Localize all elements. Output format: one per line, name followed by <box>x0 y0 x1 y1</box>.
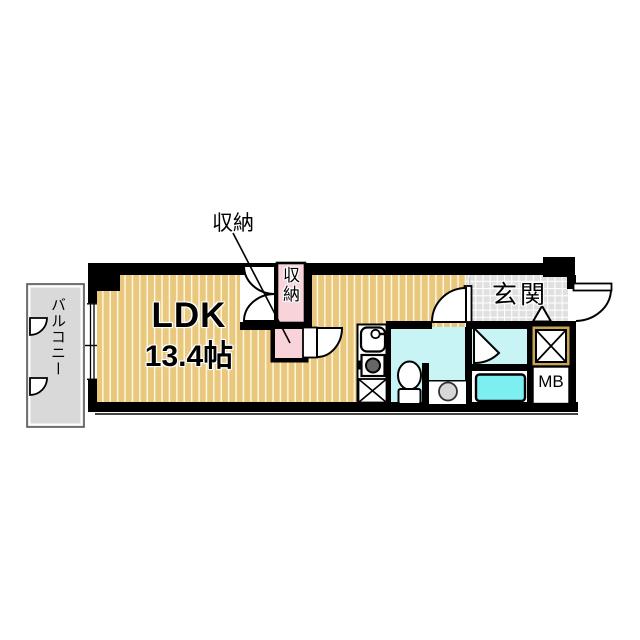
stove-knob-icon <box>358 361 363 370</box>
front-door-leaf <box>574 284 612 291</box>
meter-box-label: MB <box>533 372 569 392</box>
storage-box <box>274 329 303 358</box>
storage-callout-label: 収納 <box>212 207 254 237</box>
wash-basin <box>429 380 466 404</box>
wall-toilet-partition <box>422 363 429 404</box>
storage-door-leaf <box>303 328 317 358</box>
storage-wall-bottom <box>271 358 309 363</box>
wall-hall-bath <box>470 364 528 371</box>
closet-label: 収納 <box>280 266 302 322</box>
faucet-icon <box>371 330 379 338</box>
toilet-tank-icon <box>399 389 421 404</box>
front-door <box>574 284 612 322</box>
ldk-room-label: LDK <box>108 296 270 336</box>
wall-bottom <box>88 402 578 412</box>
bathtub-icon <box>476 375 525 402</box>
wall-top <box>88 263 575 275</box>
window <box>85 303 97 380</box>
kitchen <box>358 325 387 404</box>
toilet-bowl-icon <box>398 362 421 390</box>
stove-burner-icon <box>366 359 380 373</box>
pipe-shaft <box>533 327 570 366</box>
balcony-label: バルコニー <box>47 297 68 401</box>
front-door-swing-arc <box>576 290 611 321</box>
floorplan-canvas: 収納 収納 LDK 13.4帖 玄関 MB バルコニー <box>0 0 640 640</box>
wall-left-upper <box>88 263 97 304</box>
basin-bowl-icon <box>439 383 457 401</box>
floorplan-drawing <box>0 0 640 640</box>
appliance-space-x-icon <box>359 379 387 403</box>
wall-corner-topright <box>543 257 575 277</box>
wall-under-entrance-left <box>386 321 432 329</box>
entrance-label: 玄関 <box>492 275 548 311</box>
ldk-size-label: 13.4帖 <box>104 331 274 375</box>
window-opening <box>88 303 97 380</box>
toilet <box>398 362 421 405</box>
